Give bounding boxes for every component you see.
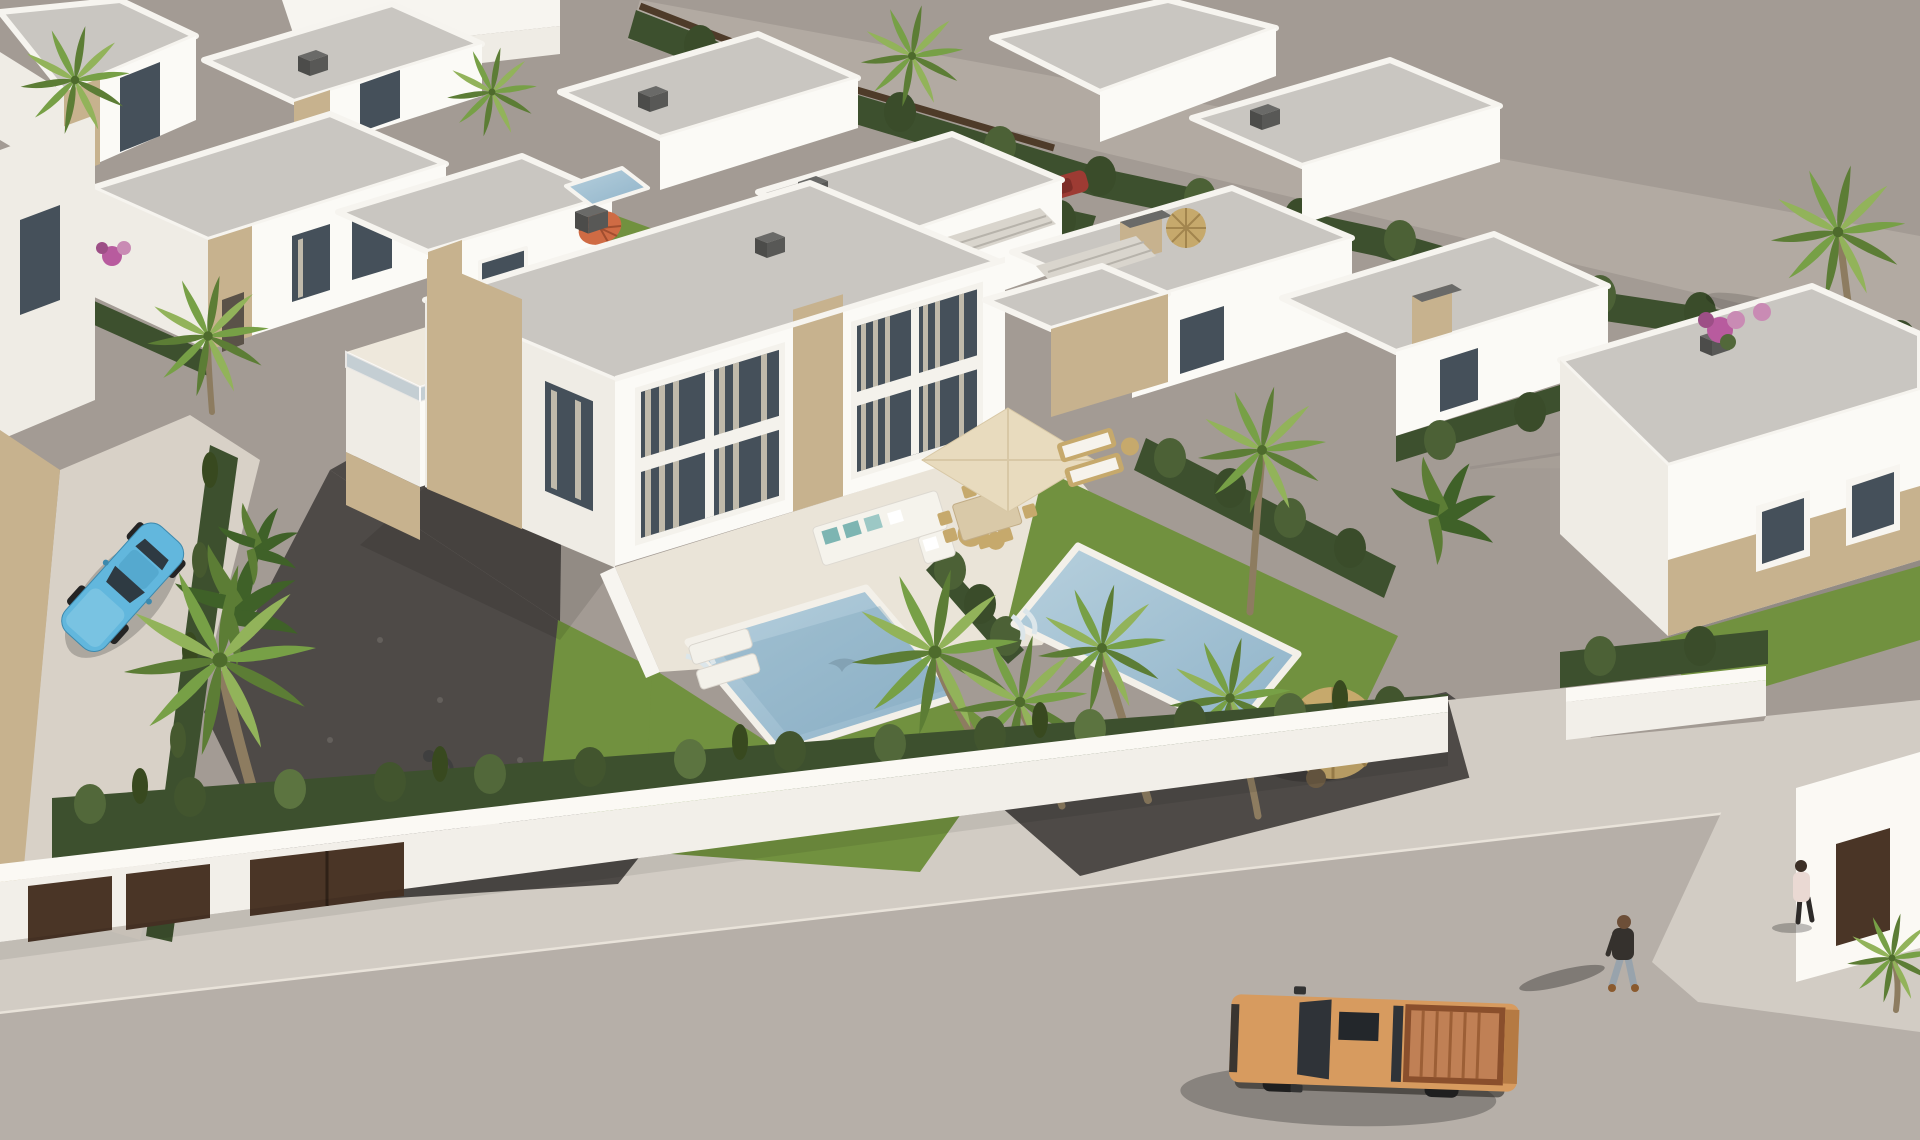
stone-pillar [427,259,522,529]
aerial-villa-development-render [0,0,1920,1140]
truck-windshield [1297,998,1332,1079]
stone-party-wall [793,294,843,511]
truck-tailgate [1503,1010,1520,1084]
scene-canvas [0,0,1920,1140]
garage-door-brown [1836,828,1890,946]
small-straw-parasol [1166,208,1206,248]
